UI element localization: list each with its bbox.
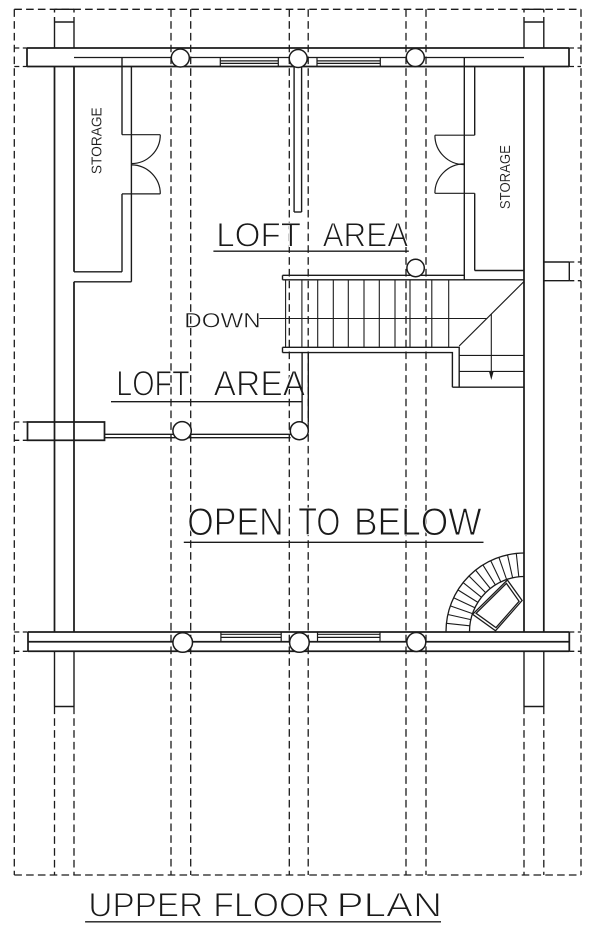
svg-text:STORAGE: STORAGE (497, 145, 514, 209)
svg-text:AREA: AREA (214, 364, 306, 403)
svg-text:LOFT: LOFT (116, 364, 189, 403)
svg-text:UPPER: UPPER (88, 887, 203, 925)
svg-text:OPEN: OPEN (187, 501, 283, 544)
svg-text:FLOOR: FLOOR (213, 887, 330, 925)
svg-text:LOFT: LOFT (216, 217, 301, 255)
svg-text:DOWN: DOWN (184, 309, 260, 332)
svg-text:AREA: AREA (323, 217, 409, 255)
svg-text:TO: TO (298, 501, 340, 544)
svg-text:PLAN: PLAN (337, 887, 442, 925)
svg-text:STORAGE: STORAGE (89, 107, 106, 174)
svg-text:BELOW: BELOW (354, 501, 482, 544)
